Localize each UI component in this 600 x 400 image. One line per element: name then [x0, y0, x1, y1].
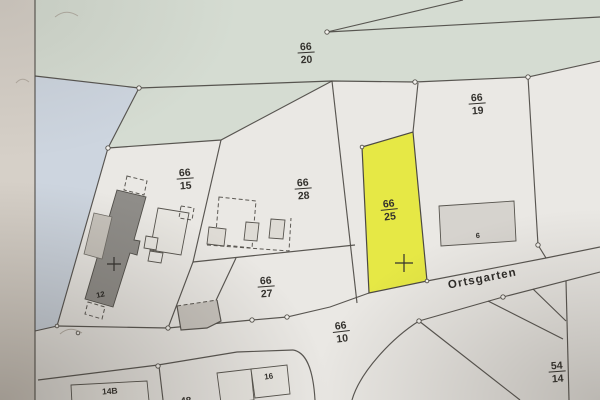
cadastral-map-photo: 66 20 66 19 66 15 66 28 66 25 66 27 66 1… [0, 0, 600, 400]
vignette-top-left [0, 0, 600, 400]
cadastral-map: 66 20 66 19 66 15 66 28 66 25 66 27 66 1… [0, 0, 600, 400]
